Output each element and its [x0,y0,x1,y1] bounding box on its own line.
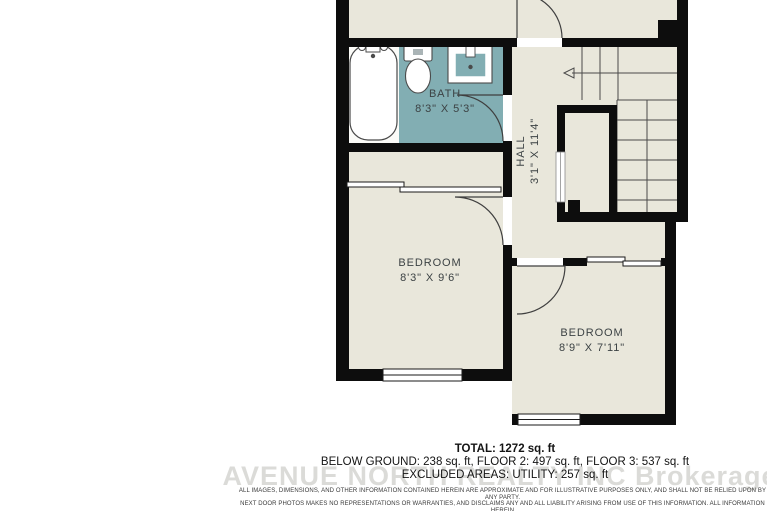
excluded-areas-text: EXCLUDED AREAS: UTILITY: 257 sq. ft [243,469,767,482]
room-dims: 8'3" X 5'3" [395,102,495,117]
room-label-bedroom1: BEDROOM 8'3" X 9'6" [355,256,505,286]
room-dims: 8'3" X 9'6" [355,271,505,286]
disclaimer: ALL IMAGES, DIMENSIONS, AND OTHER INFORM… [238,488,767,511]
floor-areas-text: BELOW GROUND: 238 sq. ft, FLOOR 2: 497 s… [243,456,767,469]
floorplan-page: BATH 8'3" X 5'3" HALL 3'1" X 11'4" BEDRO… [0,0,767,511]
room-name: BEDROOM [355,256,505,271]
bathtub [350,42,397,140]
disclaimer-line1: ALL IMAGES, DIMENSIONS, AND OTHER INFORM… [238,488,767,501]
room-label-bath: BATH 8'3" X 5'3" [395,87,495,117]
room-dims: 8'9" X 7'11" [517,341,667,356]
room-dims: 3'1" X 11'4" [528,91,542,211]
room-label-bedroom2: BEDROOM 8'9" X 7'11" [517,326,667,356]
disclaimer-line2: NEXT DOOR PHOTOS MAKES NO REPRESENTATION… [238,501,767,511]
room-name: BEDROOM [517,326,667,341]
room-name: BATH [395,87,495,102]
room-label-hall: HALL 3'1" X 11'4" [514,91,542,211]
sink-vanity [448,46,492,83]
toilet [404,44,432,93]
closet-opening [556,152,565,202]
room-name: HALL [514,91,528,211]
area-summary: TOTAL: 1272 sq. ft BELOW GROUND: 238 sq.… [243,443,767,482]
total-area-text: TOTAL: 1272 sq. ft [243,443,767,456]
